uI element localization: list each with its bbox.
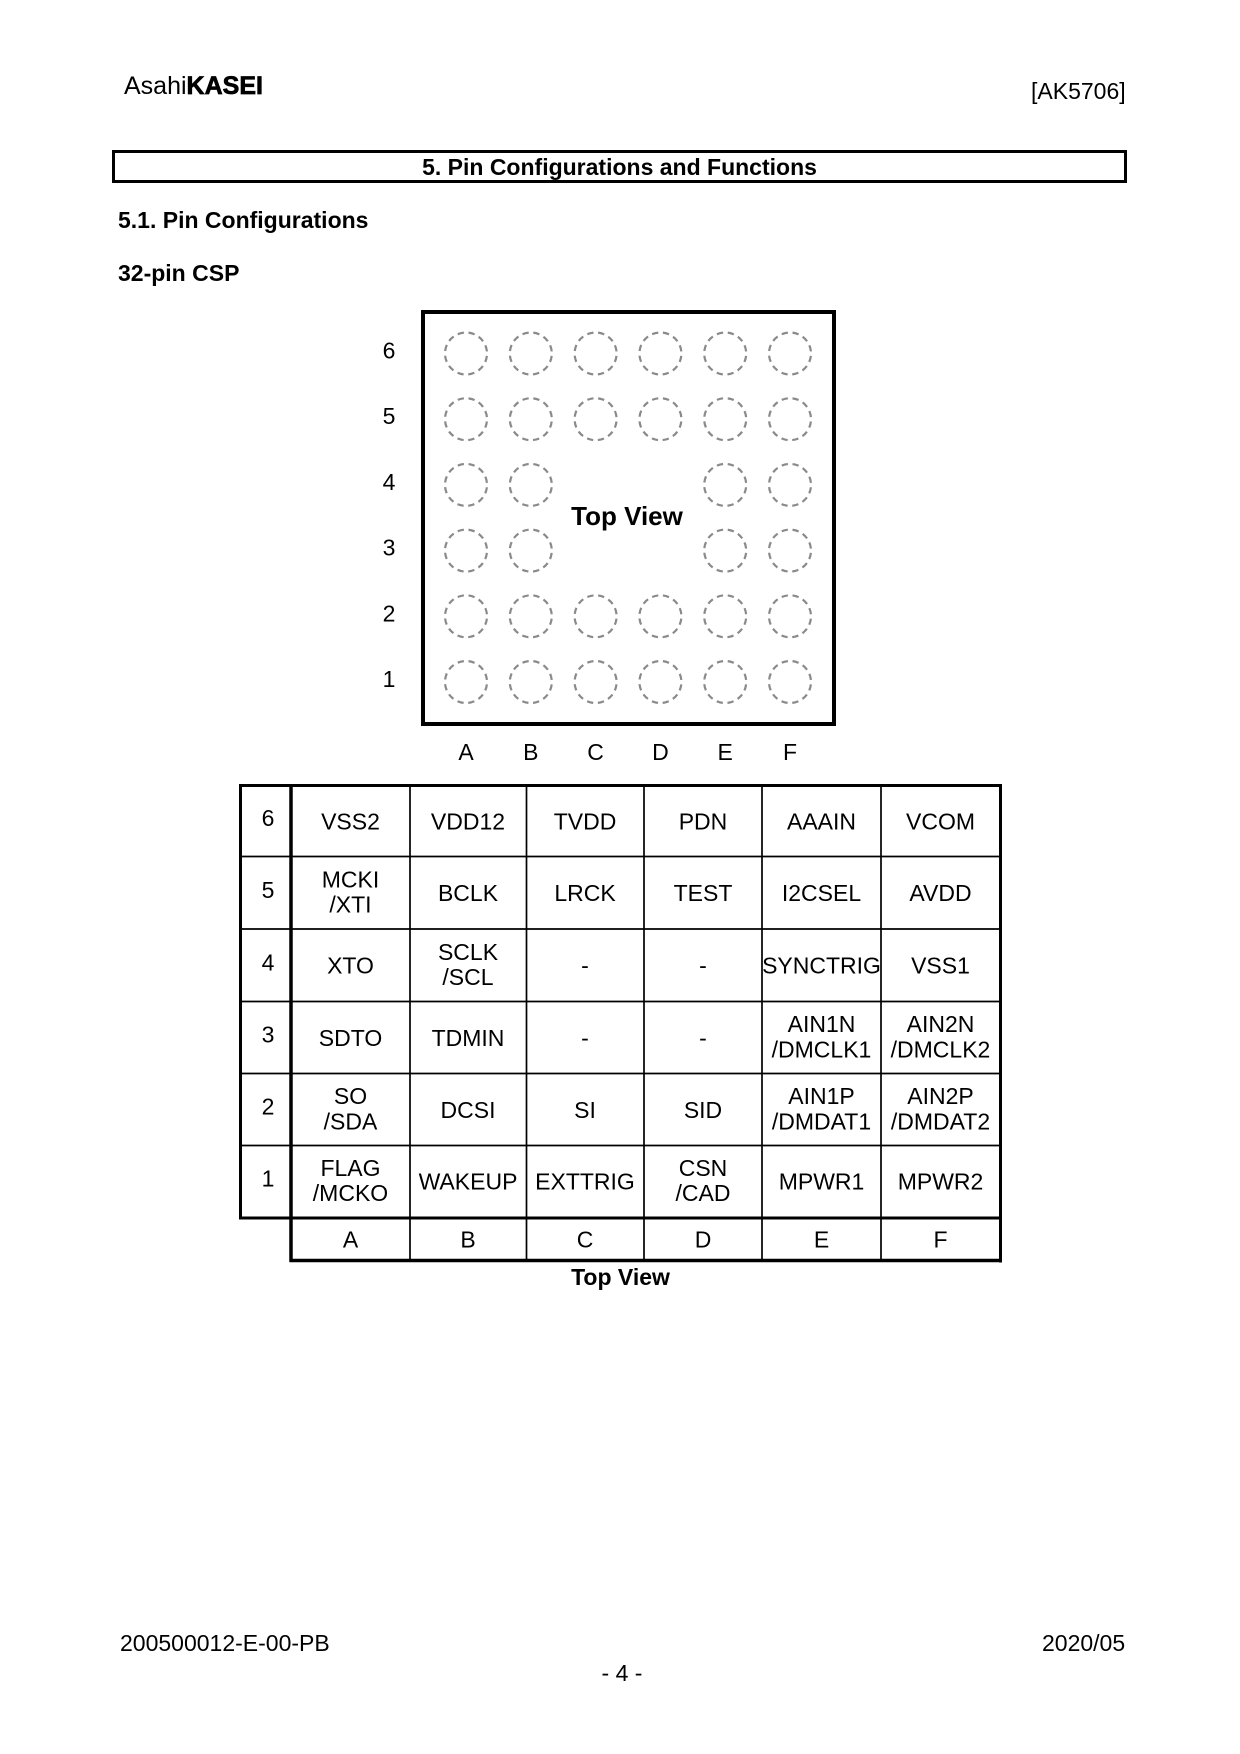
svg-text:AVDD: AVDD xyxy=(909,880,971,906)
svg-text:5: 5 xyxy=(262,877,275,903)
svg-text:-: - xyxy=(699,1025,707,1051)
svg-text:/SDA: /SDA xyxy=(324,1108,378,1134)
svg-text:A: A xyxy=(458,739,474,765)
svg-text:6: 6 xyxy=(383,338,396,364)
svg-text:VSS2: VSS2 xyxy=(321,808,380,834)
svg-text:VSS1: VSS1 xyxy=(911,953,970,979)
svg-text:TVDD: TVDD xyxy=(554,808,617,834)
svg-text:AIN2P: AIN2P xyxy=(907,1083,973,1109)
svg-text:VDD12: VDD12 xyxy=(431,808,505,834)
svg-text:D: D xyxy=(695,1227,712,1253)
svg-text:MPWR1: MPWR1 xyxy=(779,1169,865,1195)
svg-text:DCSI: DCSI xyxy=(441,1097,496,1123)
svg-text:SYNCTRIG: SYNCTRIG xyxy=(762,953,881,979)
svg-text:TEST: TEST xyxy=(674,880,733,906)
svg-text:SI: SI xyxy=(574,1097,596,1123)
svg-text:MPWR2: MPWR2 xyxy=(898,1169,984,1195)
svg-text:/DMDAT1: /DMDAT1 xyxy=(772,1108,871,1134)
svg-text:MCKI: MCKI xyxy=(322,866,380,892)
svg-text:AIN2N: AIN2N xyxy=(907,1011,975,1037)
svg-text:XTO: XTO xyxy=(327,953,374,979)
svg-text:E: E xyxy=(718,739,733,765)
svg-text:CSN: CSN xyxy=(679,1155,728,1181)
svg-text:4: 4 xyxy=(262,949,275,975)
svg-text:/DMCLK2: /DMCLK2 xyxy=(891,1036,991,1062)
svg-text:-: - xyxy=(699,953,707,979)
svg-text:F: F xyxy=(933,1227,947,1253)
svg-text:A: A xyxy=(343,1227,359,1253)
svg-text:/DMCLK1: /DMCLK1 xyxy=(772,1036,872,1062)
svg-text:Top View: Top View xyxy=(571,1264,670,1290)
svg-text:6: 6 xyxy=(262,805,275,831)
svg-text:WAKEUP: WAKEUP xyxy=(419,1169,518,1195)
svg-text:AIN1N: AIN1N xyxy=(788,1011,856,1037)
svg-text:E: E xyxy=(814,1227,829,1253)
svg-text:SCLK: SCLK xyxy=(438,939,499,965)
svg-text:C: C xyxy=(587,739,604,765)
svg-text:/SCL: /SCL xyxy=(442,964,493,990)
svg-text:/MCKO: /MCKO xyxy=(313,1180,388,1206)
svg-text:-: - xyxy=(581,1025,589,1051)
svg-text:FLAG: FLAG xyxy=(320,1155,380,1181)
svg-text:TDMIN: TDMIN xyxy=(432,1025,505,1051)
svg-text:SID: SID xyxy=(684,1097,722,1123)
svg-text:Top View: Top View xyxy=(571,501,683,531)
svg-text:EXTTRIG: EXTTRIG xyxy=(535,1169,635,1195)
svg-text:VCOM: VCOM xyxy=(906,808,975,834)
svg-text:D: D xyxy=(652,739,669,765)
svg-text:4: 4 xyxy=(383,469,396,495)
svg-text:3: 3 xyxy=(383,535,396,561)
svg-text:5: 5 xyxy=(383,403,396,429)
svg-text:B: B xyxy=(523,739,538,765)
svg-text:2: 2 xyxy=(383,600,396,626)
svg-text:BCLK: BCLK xyxy=(438,880,499,906)
svg-text:SDTO: SDTO xyxy=(319,1025,382,1051)
svg-text:/CAD: /CAD xyxy=(676,1180,731,1206)
svg-text:3: 3 xyxy=(262,1022,275,1048)
svg-text:C: C xyxy=(577,1227,594,1253)
svg-text:/DMDAT2: /DMDAT2 xyxy=(891,1108,990,1134)
svg-text:LRCK: LRCK xyxy=(554,880,616,906)
svg-text:-: - xyxy=(581,953,589,979)
svg-text:2: 2 xyxy=(262,1094,275,1120)
svg-text:PDN: PDN xyxy=(679,808,728,834)
svg-text:1: 1 xyxy=(262,1165,275,1191)
svg-text:I2CSEL: I2CSEL xyxy=(782,880,861,906)
svg-text:/XTI: /XTI xyxy=(329,892,371,918)
svg-text:AAAIN: AAAIN xyxy=(787,808,856,834)
svg-text:1: 1 xyxy=(383,666,396,692)
svg-text:B: B xyxy=(460,1227,475,1253)
svg-text:SO: SO xyxy=(334,1083,367,1109)
svg-text:AIN1P: AIN1P xyxy=(788,1083,854,1109)
svg-text:F: F xyxy=(783,739,797,765)
